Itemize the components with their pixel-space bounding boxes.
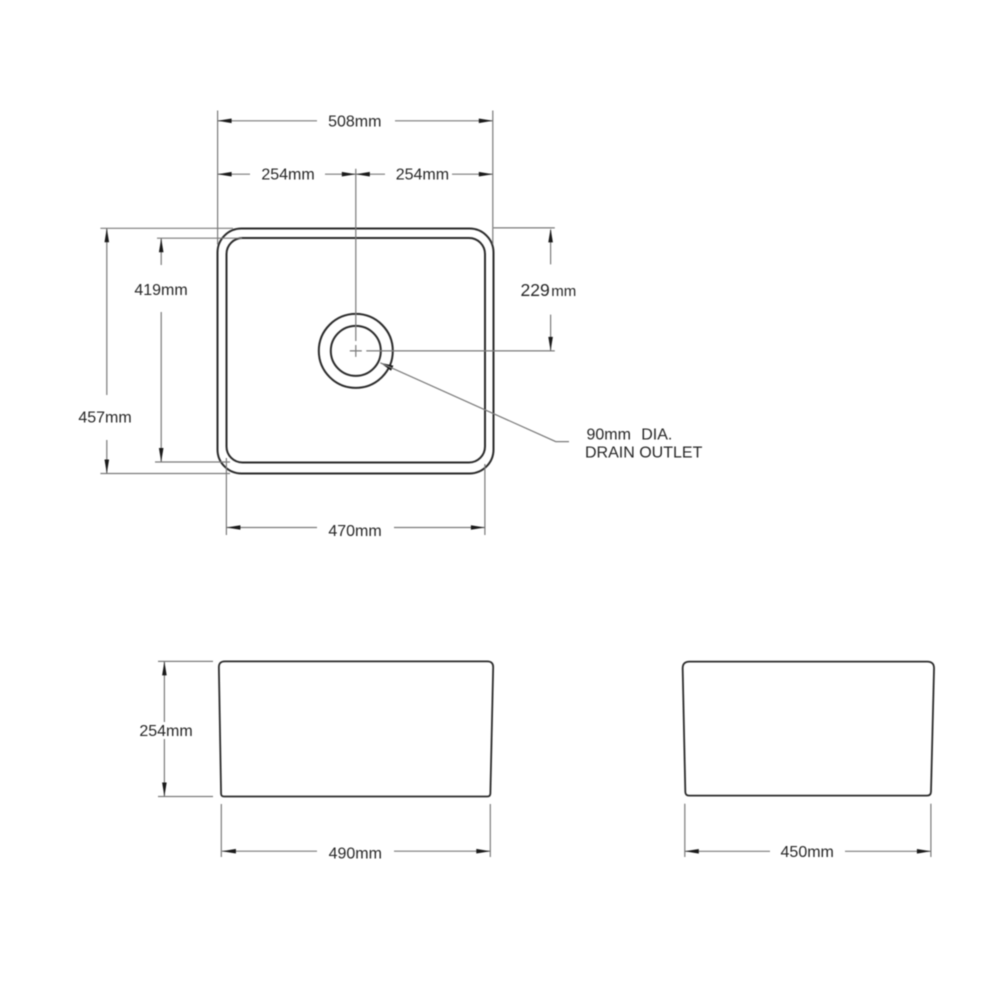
svg-text:419mm: 419mm [134, 282, 187, 299]
svg-text:508mm: 508mm [328, 113, 381, 130]
svg-text:470mm: 470mm [328, 523, 381, 540]
svg-text:254mm: 254mm [139, 723, 192, 740]
svg-text:457mm: 457mm [78, 410, 131, 427]
svg-text:DRAIN OUTLET: DRAIN OUTLET [585, 445, 703, 462]
svg-text:90mmDIA.: 90mmDIA. [587, 427, 673, 444]
svg-text:254mm: 254mm [396, 167, 449, 184]
svg-text:450mm: 450mm [781, 844, 834, 861]
svg-text:229mm: 229mm [521, 280, 577, 300]
svg-text:254mm: 254mm [261, 167, 314, 184]
svg-text:490mm: 490mm [329, 845, 382, 862]
